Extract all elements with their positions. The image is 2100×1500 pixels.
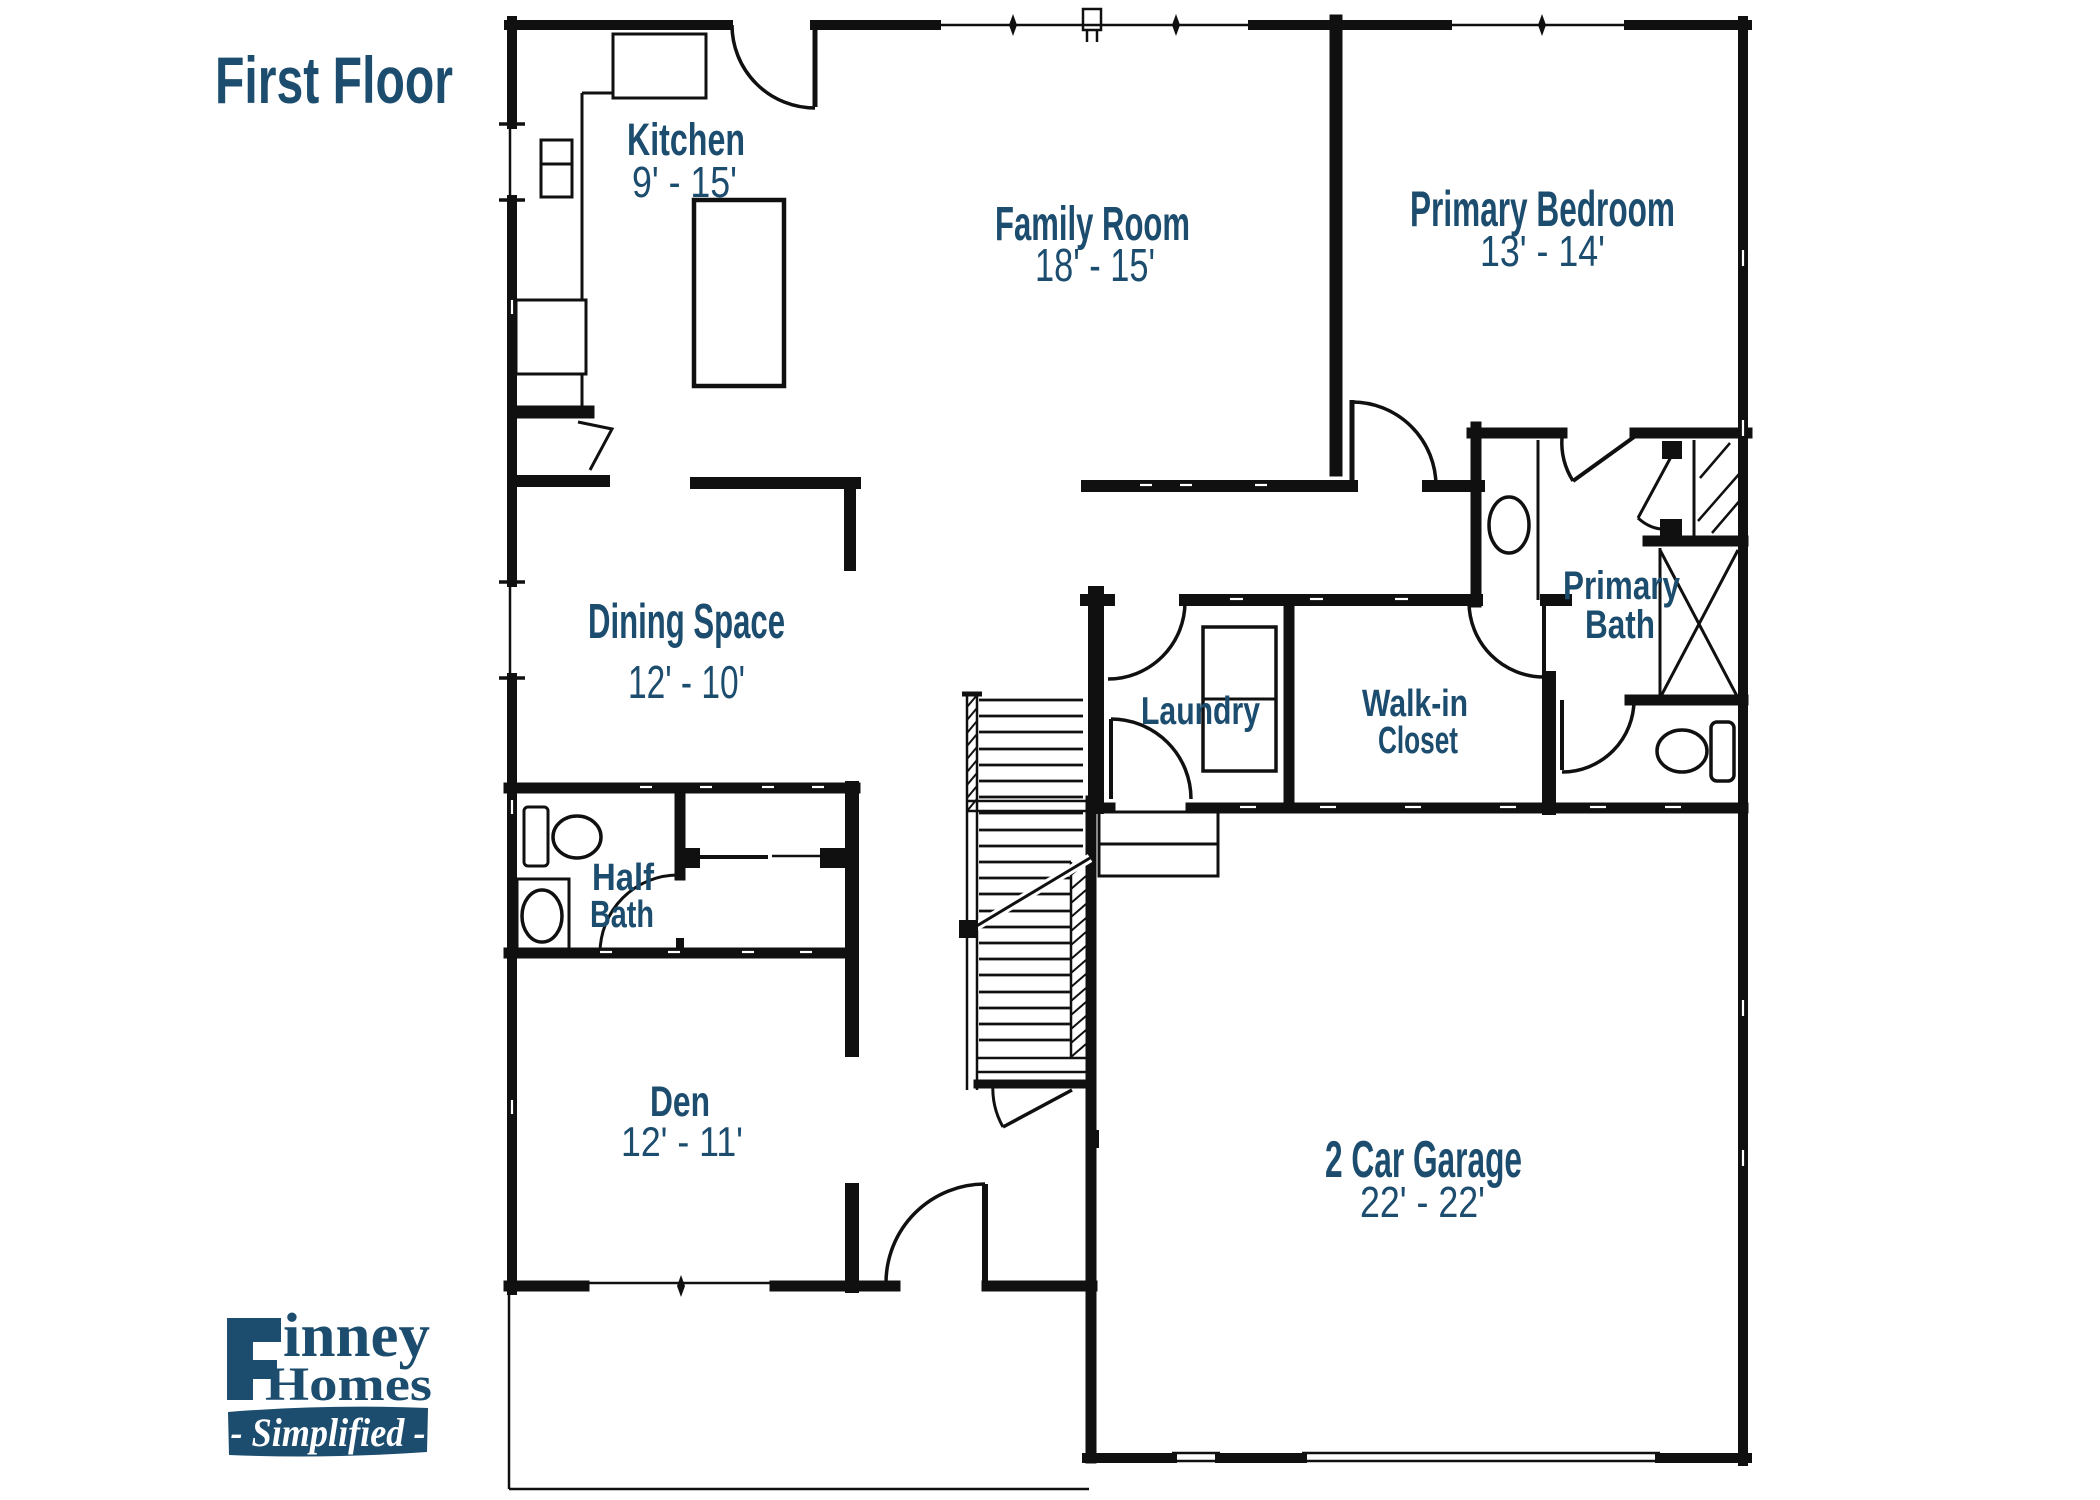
svg-text:Laundry: Laundry [1141,690,1260,733]
svg-text:- Simplified -: - Simplified - [231,1410,426,1455]
svg-text:Bath: Bath [1585,603,1655,647]
svg-text:Bath: Bath [590,894,654,936]
svg-text:9' - 15': 9' - 15' [632,158,737,207]
svg-text:Dining Space: Dining Space [588,595,785,649]
svg-text:22' - 22': 22' - 22' [1360,1178,1485,1227]
svg-text:Homes: Homes [265,1358,432,1411]
svg-text:12' - 11': 12' - 11' [621,1118,743,1165]
svg-text:Walk-in: Walk-in [1362,683,1468,725]
svg-text:12' - 10': 12' - 10' [628,656,745,708]
svg-text:13' - 14': 13' - 14' [1480,227,1605,276]
svg-text:18' - 15': 18' - 15' [1035,239,1155,291]
svg-text:First Floor: First Floor [215,43,453,117]
svg-text:Half: Half [592,857,654,899]
svg-text:Primary: Primary [1563,564,1681,608]
svg-text:Closet: Closet [1378,720,1458,762]
